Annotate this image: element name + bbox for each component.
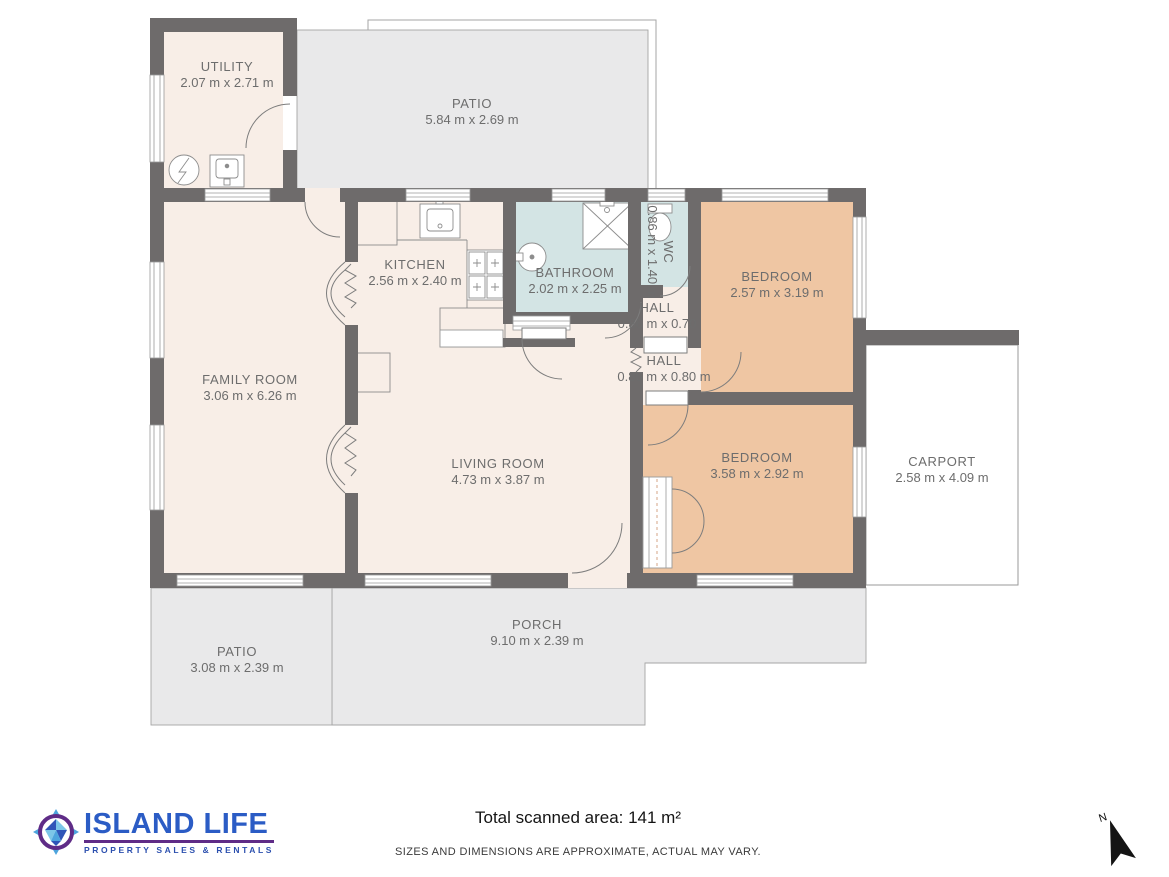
label-carport: CARPORT 2.58 m x 4.09 m (895, 454, 988, 486)
hall-door-leaf (644, 337, 687, 353)
floorplan-drawing (0, 0, 1169, 877)
label-bathroom: BATHROOM 2.02 m x 2.25 m (528, 265, 621, 297)
porch-area (332, 588, 866, 725)
logo-rule (84, 840, 274, 843)
window (150, 75, 164, 162)
label-bedroom-1: BEDROOM 2.57 m x 3.19 m (730, 269, 823, 301)
bathroom-door-leaf (522, 328, 566, 339)
label-bedroom-2: BEDROOM 3.58 m x 2.92 m (710, 450, 803, 482)
label-hall-lower: HALL 0.86 m x 0.80 m (617, 353, 710, 385)
label-family-room: FAMILY ROOM 3.06 m x 6.26 m (202, 372, 298, 404)
logo-tagline-text: PROPERTY SALES & RENTALS (84, 845, 274, 855)
floorplan-page: UTILITY 2.07 m x 2.71 m PATIO 5.84 m x 2… (0, 0, 1169, 877)
bedroom2-door-leaf (646, 391, 688, 405)
label-patio-top: PATIO 5.84 m x 2.69 m (425, 96, 518, 128)
living-sideboard (440, 330, 503, 347)
label-patio-bottom: PATIO 3.08 m x 2.39 m (190, 644, 283, 676)
disclaimer-text: SIZES AND DIMENSIONS ARE APPROXIMATE, AC… (395, 846, 761, 858)
island-life-logo: ISLAND LIFE PROPERTY SALES & RENTALS (32, 808, 274, 856)
label-hall-upper: HALL 0.86 m x 0.70 (618, 300, 697, 332)
label-porch: PORCH 9.10 m x 2.39 m (490, 617, 583, 649)
island-life-logo-icon (32, 808, 80, 856)
logo-brand-text: ISLAND LIFE (84, 810, 274, 839)
total-scanned-area-text: Total scanned area: 141 m² (475, 808, 681, 828)
utility-heater (169, 155, 199, 185)
patio-family-door-gap (305, 188, 340, 202)
kitchen-stove (467, 250, 505, 300)
label-kitchen: KITCHEN 2.56 m x 2.40 m (368, 257, 461, 289)
label-living-room: LIVING ROOM 4.73 m x 3.87 m (451, 456, 544, 488)
label-wc: WC 0.86 m x 1.40 m (644, 205, 676, 298)
front-door-gap (568, 573, 627, 588)
label-utility: UTILITY 2.07 m x 2.71 m (180, 59, 273, 91)
